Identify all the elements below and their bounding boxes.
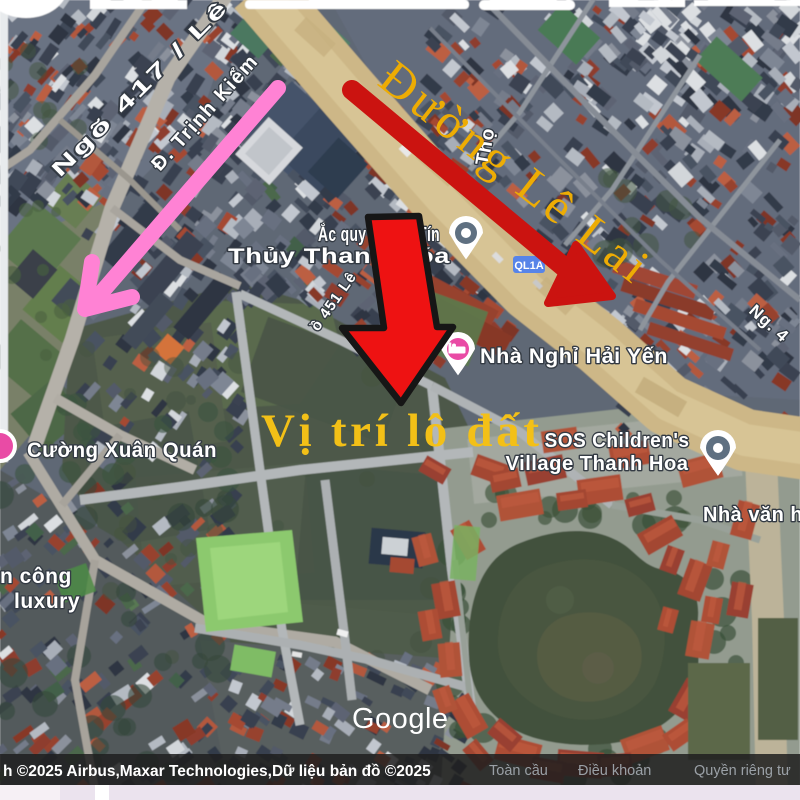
svg-text:Quyền riêng tư: Quyền riêng tư [694, 763, 791, 779]
svg-text:luxury: luxury [14, 590, 80, 613]
svg-text:Cường Xuân Quán: Cường Xuân Quán [27, 439, 217, 462]
svg-text:Điều khoản: Điều khoản [578, 763, 651, 779]
svg-text:h ©2025 Airbus,Maxar Technolog: h ©2025 Airbus,Maxar Technologies,Dữ liệ… [3, 763, 431, 780]
svg-text:Nhà Nghỉ Hải Yến: Nhà Nghỉ Hải Yến [480, 345, 668, 368]
svg-text:n công: n công [0, 565, 72, 588]
svg-text:SOS Children's: SOS Children's [545, 430, 690, 452]
svg-text:Toàn cầu: Toàn cầu [489, 763, 548, 779]
svg-text:Vị trí lô đất: Vị trí lô đất [261, 405, 539, 457]
svg-text:Google: Google [352, 703, 449, 735]
svg-text:QL1A: QL1A [514, 260, 543, 272]
svg-text:Nhà văn h: Nhà văn h [703, 504, 800, 526]
